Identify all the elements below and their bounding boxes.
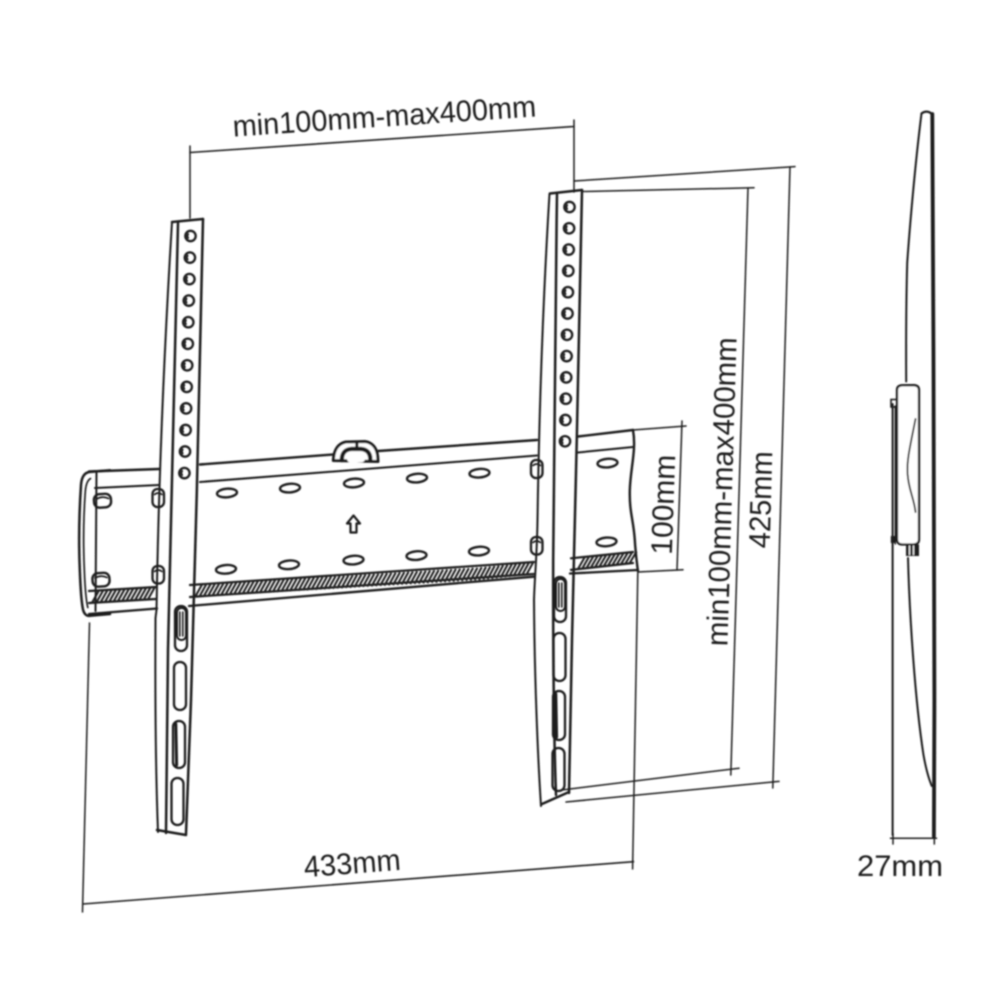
svg-text:27mm: 27mm <box>857 850 943 883</box>
svg-text:425mm: 425mm <box>744 451 780 549</box>
svg-text:100mm: 100mm <box>646 454 682 555</box>
